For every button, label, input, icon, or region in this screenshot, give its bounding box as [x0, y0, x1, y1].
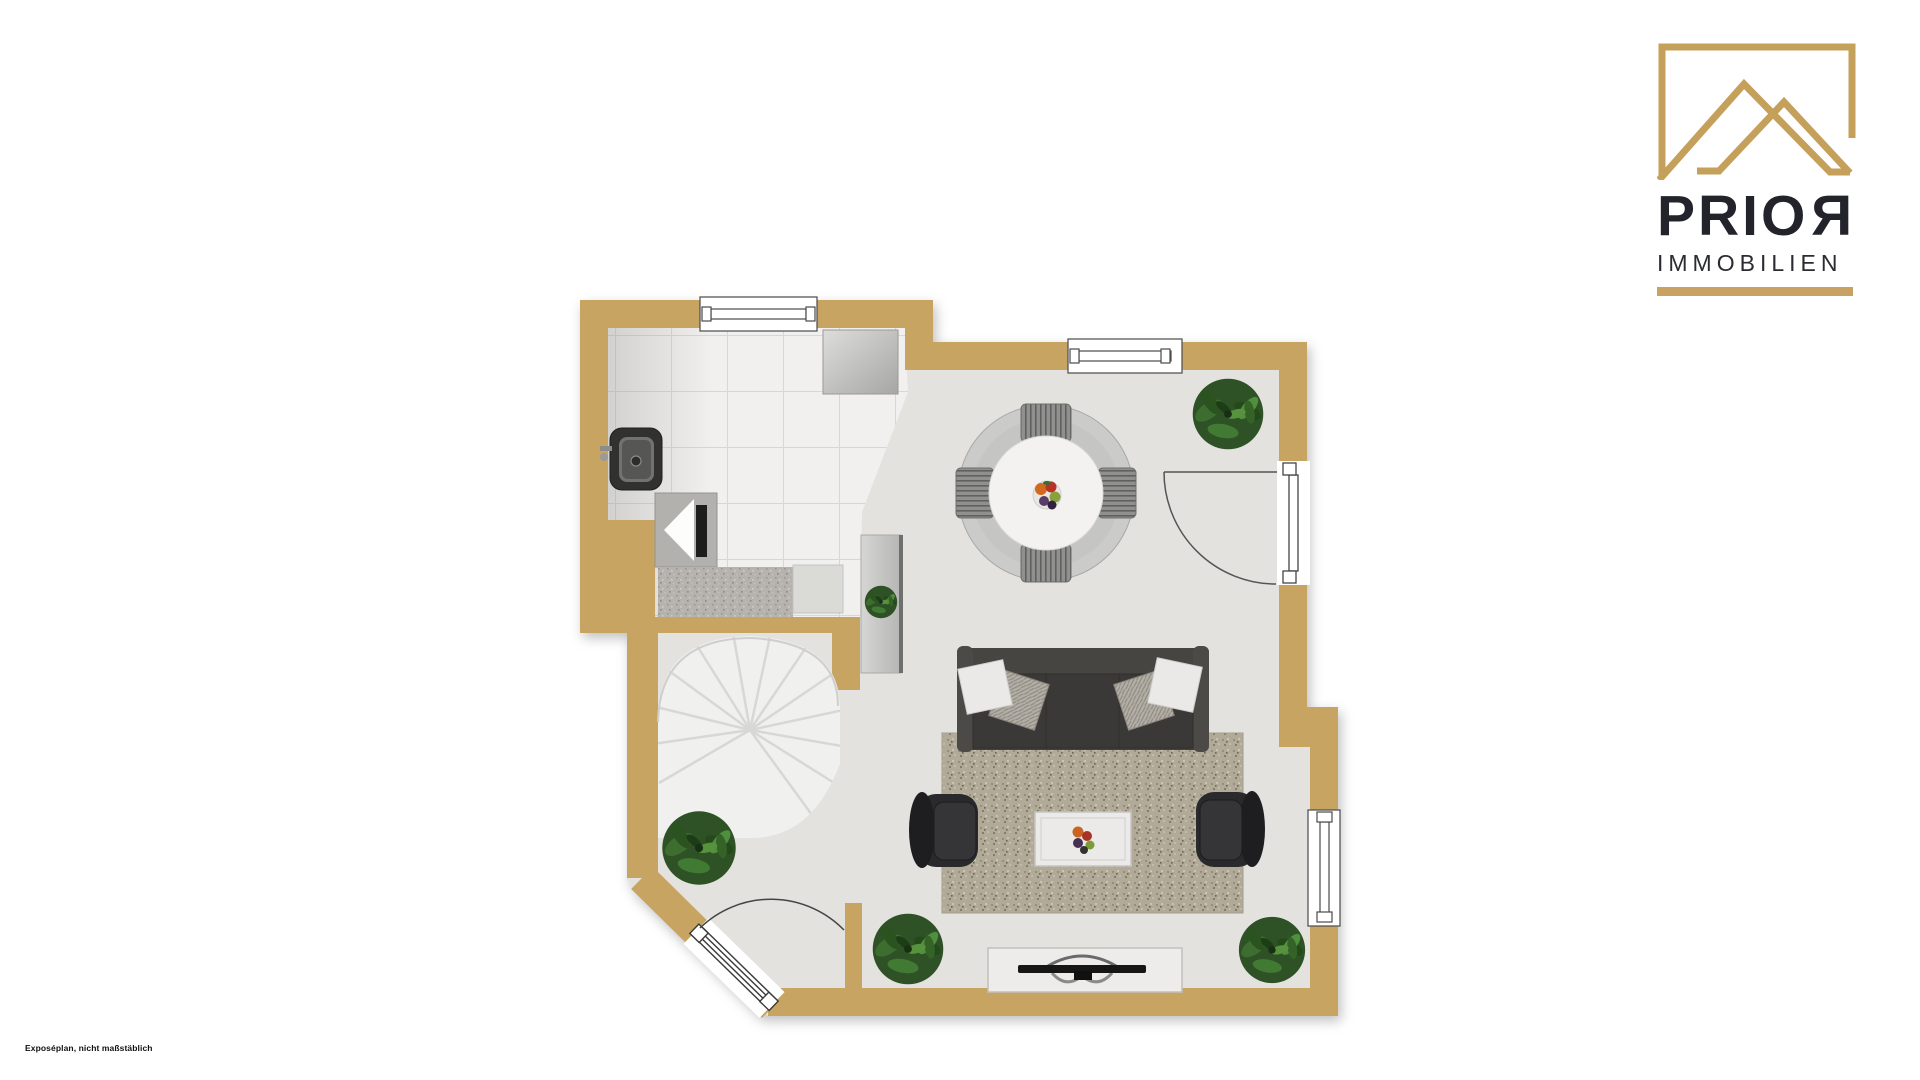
mirrored-r: R [1808, 188, 1852, 245]
kitchen-counter-end [793, 565, 843, 613]
page: PRIOR IMMOBILIEN Exposéplan, nicht maßst… [0, 0, 1920, 1080]
logo-mountain-icon [1657, 40, 1857, 180]
armchair-right [1196, 791, 1265, 867]
window-living [1068, 339, 1182, 373]
brand-logo: PRIOR IMMOBILIEN [1657, 40, 1857, 296]
fruit-bowl [1033, 481, 1061, 510]
brand-gold-bar [1657, 287, 1853, 296]
plan-caption: Exposéplan, nicht maßstäblich [25, 1043, 153, 1053]
kitchen-cabinet [823, 330, 898, 394]
armchair-left [909, 792, 978, 868]
brand-name: PRIOR [1657, 188, 1857, 245]
kitchen-counter [658, 567, 793, 617]
sofa [957, 646, 1209, 752]
window-kitchen [700, 297, 817, 331]
brand-subtitle: IMMOBILIEN [1657, 252, 1857, 275]
stove [655, 493, 717, 567]
tv-sideboard [988, 948, 1182, 992]
floorplan [0, 0, 1920, 1080]
coffee-table [1035, 812, 1131, 866]
window-right [1308, 810, 1340, 926]
